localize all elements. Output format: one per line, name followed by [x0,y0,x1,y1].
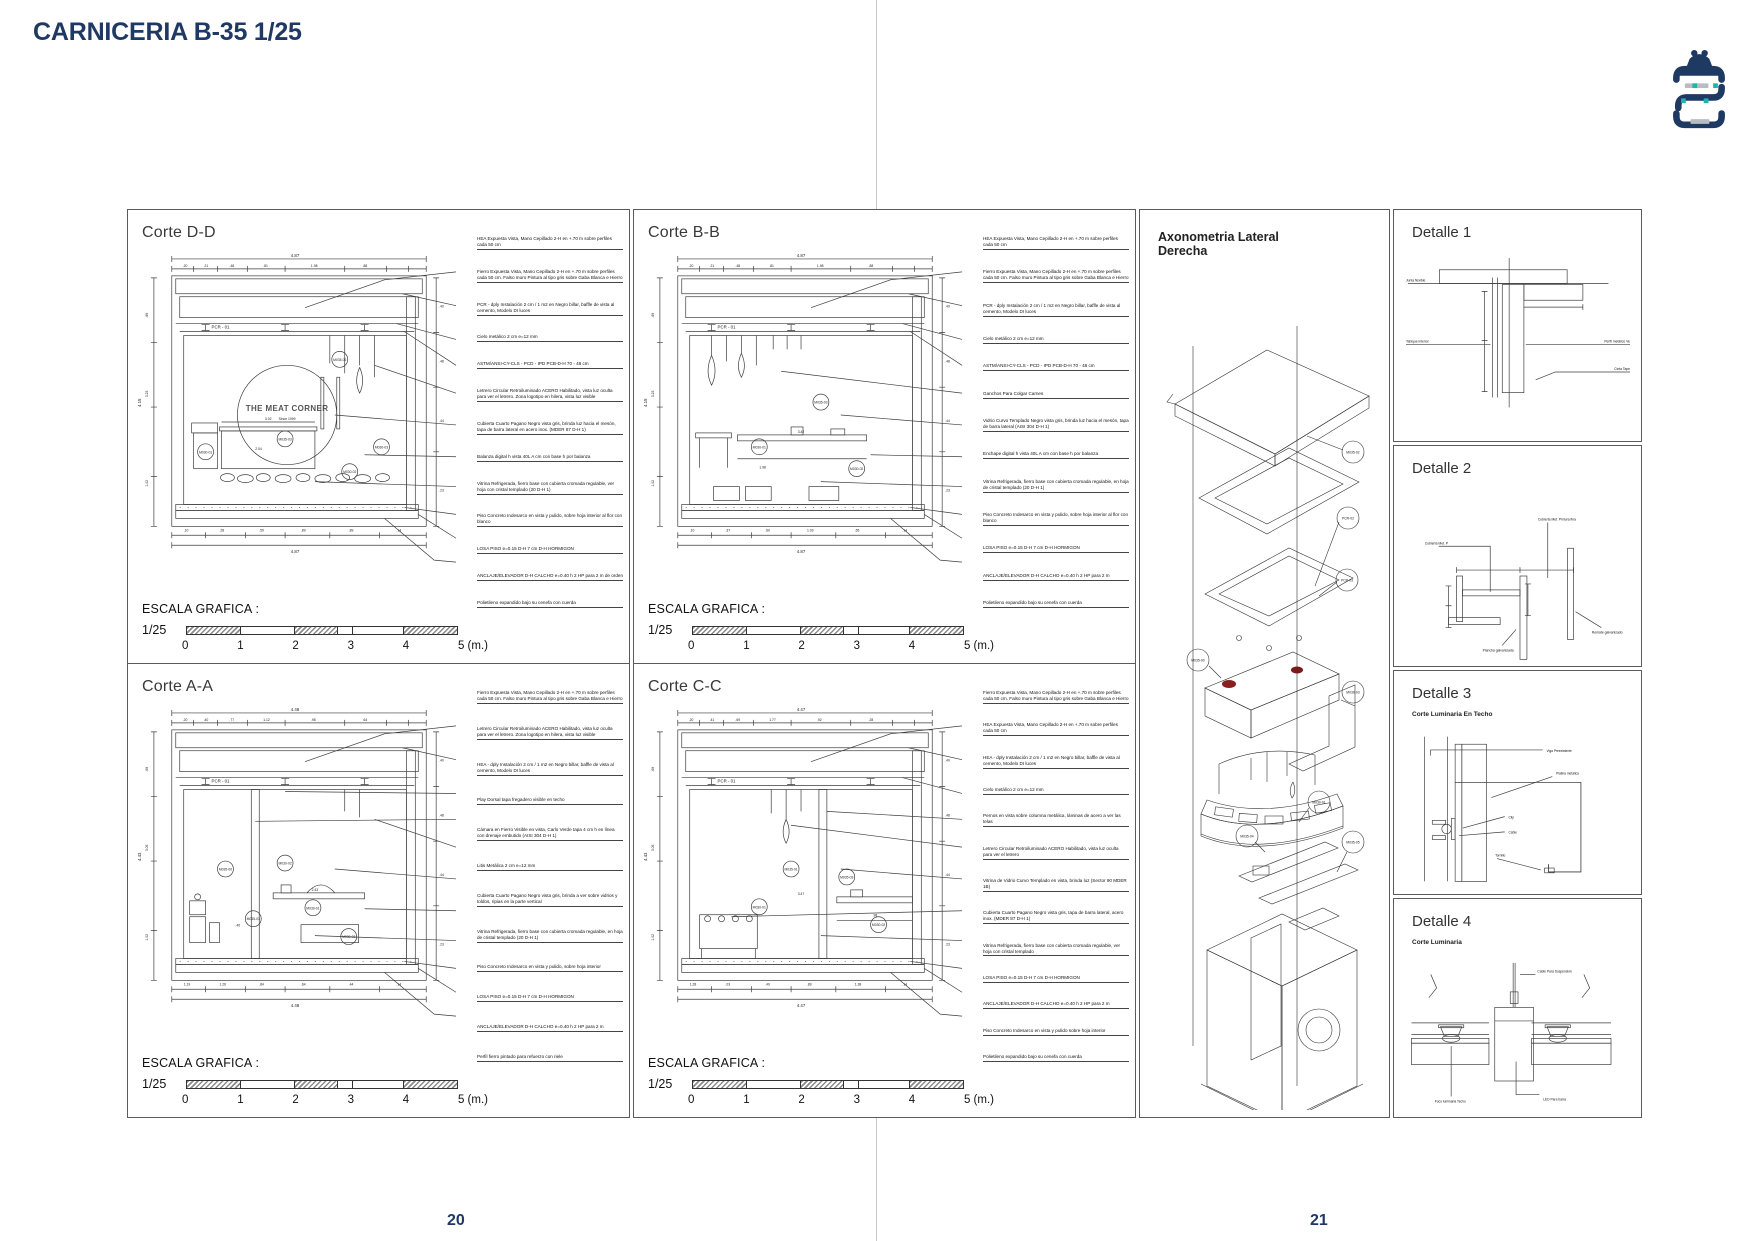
annotation-note: PCR - dply Instalación 2 cm / 1 m2 en Ne… [983,303,1129,317]
svg-text:.23: .23 [439,943,444,947]
svg-text:Foco luminaria Techo: Foco luminaria Techo [1435,1099,1466,1103]
svg-text:Cable Para Suspensión: Cable Para Suspensión [1537,970,1572,974]
annotation-note: Vitrina Refrigerada, fierro base con cub… [983,943,1129,957]
corte-drawing-cc: 4.47 .20.41.691.77.92.28 1.28.03.49.891.… [642,702,970,1040]
panel-detalle-3: Detalle 3 Corte Luminaria En Techo Viga … [1393,670,1642,895]
svg-text:PCR - 01: PCR - 01 [718,325,737,330]
annotation-note: Pernos en vista sobre columna metálica, … [983,813,1129,827]
panel-axonometria: Axonometria Lateral Derecha [1139,209,1390,1118]
svg-text:M035-00: M035-00 [1191,659,1204,663]
scale-tick: 3 [854,640,860,652]
svg-text:.64: .64 [363,718,368,722]
svg-text:.23: .23 [945,943,950,947]
annotation-note: Piso Concreto Indesarco en vista y pulid… [477,964,623,972]
scale-label: ESCALA GRAFICA : [648,1056,988,1070]
scale-tick: 4 [403,640,409,652]
scale-tick: 0 [182,1094,188,1106]
svg-text:.40: .40 [439,759,444,763]
svg-text:Cubierta Met. Pintura fina: Cubierta Met. Pintura fina [1538,517,1576,521]
detalle-subtitle: Corte Luminaria [1412,939,1462,946]
svg-text:.20: .20 [183,264,188,268]
svg-text:4.87: 4.87 [291,253,300,258]
annotation-note: LOSA PISO e=0.15 D-H 7 cm D-H HORMIGON [983,975,1129,983]
annotation-note: LOSA PISO e=0.15 D-H 7 cm D-H HORMIGON [477,994,623,1002]
annotation-note: Perfil fierro pintado para refuerzo con … [477,1054,623,1062]
scale-tick: 1 [237,640,243,652]
scale-ratio: 1/25 [142,1077,186,1091]
svg-text:2.43: 2.43 [312,888,319,892]
svg-text:.69: .69 [145,313,149,318]
section-structure: PCR - 01 [678,730,932,980]
axonometria-callouts: M035-02 PCR-02 PCR-03 M035-00 M030-03 M0… [1187,436,1364,872]
svg-text:.23: .23 [439,489,444,493]
exploded-brick-signage-box [1205,652,1339,738]
annotation-column: HEA Expuesta Vista, Mano Cepillado 2-H e… [983,236,1129,608]
svg-text:.10: .10 [690,528,695,532]
svg-text:.69: .69 [145,767,149,772]
annotation-note: ASTM/ANSI-CY-CLS - PCD - IPD PCB-D-H 70 … [983,363,1129,371]
svg-text:Since 1999: Since 1999 [279,417,296,421]
scale-tick: 3 [854,1094,860,1106]
annotation-note: Fierro Expuesta Vista, Mano Cepillado 2-… [983,269,1129,283]
annotation-note: Enchape digital h vista 40L A cm con bas… [983,451,1129,459]
annotation-note: Cielo metálico 2 cm e=12 mm [983,336,1129,344]
scale-tick: 2 [292,1094,298,1106]
scale-end-label: 5 (m.) [458,640,488,652]
svg-text:M030-02: M030-02 [872,923,885,927]
svg-text:.48: .48 [735,264,740,268]
svg-text:.28: .28 [219,528,224,532]
exploded-glass-guard [1219,751,1315,798]
svg-text:M035-05: M035-05 [1346,841,1359,845]
exploded-ceiling-frame-1 [1199,448,1359,534]
annotation-note: ASTM/ANSI-CY-CLS - PCD - IPD PCB-D-H 70 … [477,361,623,369]
scale-tick: 2 [798,640,804,652]
section-structure: PCR - 01 [678,276,932,526]
svg-text:.40: .40 [945,759,950,763]
svg-text:4.15: 4.15 [137,398,142,407]
scale-ticks: 5 (m.)01234 [688,640,994,652]
svg-text:.84: .84 [259,982,264,986]
svg-text:.48: .48 [945,359,950,363]
svg-text:M035-02: M035-02 [1346,451,1359,455]
svg-text:.48: .48 [945,813,950,817]
annotation-note: ANCLAJE/ELEVADOR D-H CALCHO e=0.40 h 2 H… [983,573,1129,581]
detalle-title: Detalle 4 [1412,913,1471,930]
scale-ticks: 5 (m.)01234 [688,1094,994,1106]
svg-text:.40: .40 [945,305,950,309]
svg-text:1.02: 1.02 [145,934,149,941]
corte-title: Corte A-A [142,678,213,696]
svg-text:.81: .81 [769,264,774,268]
detalle-title: Detalle 3 [1412,685,1471,702]
corte-title: Corte B-B [648,224,720,242]
svg-text:.44: .44 [945,873,950,877]
svg-text:3.23: 3.23 [145,390,149,397]
svg-text:Perfil metálico Ve: Perfil metálico Ve [1604,339,1630,343]
scale-block: ESCALA GRAFICA : 1/25 5 (m.)01234 [648,1056,988,1106]
svg-text:.98: .98 [311,718,316,722]
annotation-note: HEA Expuesta Vista, Mano Cepillado 2-H e… [983,722,1129,736]
svg-text:4.47: 4.47 [797,1003,806,1008]
annotation-note: Vitrina Refrigerada, fierro base con cub… [477,481,623,495]
svg-text:3.02: 3.02 [265,417,272,421]
svg-text:M035-04: M035-04 [1240,835,1253,839]
svg-text:.28: .28 [869,718,874,722]
scale-end-label: 5 (m.) [964,1094,994,1106]
panel-detalle-2: Detalle 2 Cubierta Met. P Cubierta Met. … [1393,445,1642,667]
annotation-note: Vidrio Curvo Templado Negro vista gris, … [983,418,1129,432]
annotation-note: LOSA PISO e=0.15 D-H 7 cm D-H HORMIGON [477,546,623,554]
panel-detalle-4: Detalle 4 Corte Luminaria Cable Para Sus… [1393,898,1642,1118]
svg-text:M030-03: M030-03 [342,935,355,939]
svg-text:.48: .48 [439,813,444,817]
annotation-note: Piso Concreto Indesarco en vista y pulid… [477,513,623,527]
axonometria-title: Axonometria Lateral Derecha [1158,230,1279,259]
annotation-note: Vitrina de Vidrio Curvo Templado en vist… [983,878,1129,892]
scale-bar [692,1080,964,1089]
svg-text:.44: .44 [439,873,444,877]
spotlight-right [1545,1025,1570,1042]
svg-text:3.42: 3.42 [798,430,805,434]
document-page: CARNICERIA B-35 1/25 Corte D-D [0,0,1754,1241]
annotation-note: Play Dorsal tapa fregadero visible en te… [477,797,623,805]
scale-tick: 4 [909,1094,915,1106]
annotation-note: ANCLAJE/ELEVADOR D-H CALCHO e=0.40 h 2 H… [477,573,623,581]
svg-text:.23: .23 [945,489,950,493]
corte-section-aa: Corte A-A 4.48 .20.40.771.12.98.64 1.191… [128,663,629,1117]
scale-label: ESCALA GRAFICA : [142,602,482,616]
svg-text:.40: .40 [439,305,444,309]
svg-text:M035-02: M035-02 [333,358,346,362]
svg-text:.44: .44 [439,419,444,423]
scale-block: ESCALA GRAFICA : 1/25 5 (m.)01234 [142,1056,482,1106]
annotation-note: Piso Concreto Indesarco en vista y pulid… [983,512,1129,526]
exploded-base-rails [1239,842,1358,904]
svg-text:1.98: 1.98 [759,466,766,470]
annotation-note: Letrero Circular Retroiluminado ACERO Ha… [477,388,623,402]
annotation-note: Cubierta Cuarto Pagano Negro vista gris,… [983,910,1129,924]
svg-text:1.19: 1.19 [184,982,191,986]
svg-text:M030-03: M030-03 [375,445,388,449]
svg-text:M035-03: M035-03 [247,917,260,921]
svg-text:4.43: 4.43 [137,852,142,861]
svg-text:M030-01: M030-01 [753,445,766,449]
svg-text:4.48: 4.48 [291,1003,300,1008]
scale-tick: 1 [237,1094,243,1106]
annotation-column: Fierro Expuesta Vista, Mano Cepillado 2-… [983,690,1129,1062]
studio-bear-logo-icon [1666,44,1732,134]
annotation-note: Fierro Expuesta Vista, Mano Cepillado 2-… [477,269,623,283]
svg-text:4.87: 4.87 [797,253,806,258]
callout-bubbles: M035-03 M030-01 M030-02 [751,394,864,476]
callout-bubbles: M035-00 M030-02 M030-01 M035-03 M030-03 [218,855,357,944]
svg-text:Tornillo: Tornillo [1495,854,1505,858]
svg-text:.44: .44 [349,982,354,986]
annotation-note: Piso Concreto Indesarco en vista y pulid… [983,1028,1129,1036]
svg-text:1.02: 1.02 [651,934,655,941]
svg-text:.37: .37 [725,528,730,532]
svg-text:M030-01: M030-01 [1312,801,1325,805]
svg-text:1.02: 1.02 [651,480,655,487]
interior-fitout: THE MEAT CORNER Since 1999 3.02 2.04 [192,335,390,482]
annotation-note: ANCLAJE/ELEVADOR D-H CALCHO e=0.40 h 2 H… [983,1001,1129,1009]
svg-text:1.12: 1.12 [263,718,270,722]
svg-text:Clip: Clip [1508,816,1514,820]
svg-text:.10: .10 [184,528,189,532]
exploded-kiosk [1201,914,1363,1110]
interior-fitout: 2.43 .40 [190,789,365,958]
svg-text:.40: .40 [235,924,240,928]
scale-tick: 0 [182,640,188,652]
annotation-note: Litis Metálica 2 cm e=12 mm [477,863,623,871]
scale-tick: 0 [688,1094,694,1106]
svg-text:M030-01: M030-01 [306,906,319,910]
scale-ratio: 1/25 [142,623,186,637]
annotation-note: Cubierta Cuarto Pagano Negro vista gris,… [477,893,623,907]
svg-text:Tabique interior: Tabique interior [1406,339,1430,343]
exploded-l-bracket [1289,685,1355,771]
detalle-title: Detalle 1 [1412,224,1471,241]
svg-text:PCR - 01: PCR - 01 [718,779,737,784]
dimension-lines: 4.87 .20.21.48.811.98.88 .10.37.601.03.6… [643,253,950,554]
exploded-hooks [1237,636,1302,651]
corte-section-cc: Corte C-C 4.47 .20.41.691.77.92.28 1.28.… [634,663,1135,1117]
detalle-4-drawing: Cable Para Suspensión Foco luminaria Tec… [1399,957,1637,1112]
scale-ticks: 5 (m.)01234 [182,640,488,652]
svg-text:.21: .21 [204,264,209,268]
svg-text:Viga Preexistente: Viga Preexistente [1547,749,1572,753]
scale-bar [186,626,458,635]
svg-text:4.48: 4.48 [291,707,300,712]
corte-title: Corte C-C [648,678,722,696]
svg-text:2.04: 2.04 [255,447,262,451]
annotation-note: Vitrina Refrigerada, fierro base con cub… [477,929,623,943]
scale-bar [692,626,964,635]
detalle-title: Detalle 2 [1412,460,1471,477]
svg-text:4.43: 4.43 [643,852,648,861]
scale-label: ESCALA GRAFICA : [648,602,988,616]
svg-text:Cubierta Met. P: Cubierta Met. P [1425,541,1449,545]
annotation-note: HEA - dply Instalación 2 cm / 1 m2 en Ne… [477,762,623,776]
svg-text:1.02: 1.02 [145,480,149,487]
panel-cortes-left: Corte D-D 4.87 .20.21.48.811.98.88 .10.2… [127,209,630,1118]
svg-text:M030-02: M030-02 [343,470,356,474]
page-number-left: 20 [447,1212,465,1230]
svg-text:.20: .20 [183,718,188,722]
spotlight-left [1439,1025,1464,1042]
corte-section-dd: Corte D-D 4.87 .20.21.48.811.98.88 .10.2… [128,210,629,663]
svg-text:M035-03: M035-03 [840,875,853,879]
scale-tick: 1 [743,1094,749,1106]
svg-text:4.87: 4.87 [797,549,806,554]
corte-drawing-aa: 4.48 .20.40.771.12.98.64 1.191.26.84.64.… [136,702,464,1040]
annotation-note: Cubierta Cuarto Pagano Negro vista gris,… [477,421,623,435]
svg-text:Cinta Tape: Cinta Tape [1614,367,1630,371]
svg-text:M030-03: M030-03 [1346,691,1359,695]
svg-text:4.47: 4.47 [797,707,806,712]
svg-text:LED Para barra: LED Para barra [1543,1097,1566,1101]
scale-end-label: 5 (m.) [458,1094,488,1106]
annotation-note: Cielo metálico 2 cm e=12 mm [983,787,1129,795]
pendant-luminaire [1495,963,1534,1081]
scale-tick: 4 [403,1094,409,1106]
svg-text:PCR-03: PCR-03 [1341,579,1353,583]
annotation-note: HEA Expuesta Vista, Mano Cepillado 2-H e… [983,236,1129,250]
svg-text:M030-01: M030-01 [753,905,766,909]
detalle-2-drawing: Cubierta Met. P Cubierta Met. Pintura fi… [1399,492,1637,664]
svg-text:THE MEAT CORNER: THE MEAT CORNER [246,404,329,413]
svg-text:.40: .40 [204,718,209,722]
annotation-note: HEA - dply Instalación 2 cm / 1 m2 en Ne… [983,755,1129,769]
scale-ratio: 1/25 [648,1077,692,1091]
axonometria-drawing: M035-02 PCR-02 PCR-03 M035-00 M030-03 M0… [1147,286,1383,1110]
svg-text:Plancha galvanizada: Plancha galvanizada [1483,648,1514,652]
svg-text:3.23: 3.23 [651,390,655,397]
detalle-subtitle: Corte Luminaria En Techo [1412,711,1492,718]
svg-text:.60: .60 [765,528,770,532]
svg-text:M035-03: M035-03 [814,401,827,405]
scale-block: ESCALA GRAFICA : 1/25 5 (m.)01234 [142,602,482,652]
corte-drawing-bb: 4.87 .20.21.48.811.98.88 .10.37.601.03.6… [642,248,970,586]
annotation-note: HEA Expuesta Vista, Mano Cepillado 2-H e… [477,236,623,250]
svg-text:.65: .65 [855,528,860,532]
annotation-note: Vitrina Refrigerada, fierro base con cub… [983,479,1129,493]
svg-text:.77: .77 [229,718,234,722]
svg-text:Remate galvanizado: Remate galvanizado [1592,631,1623,635]
exploded-drawer-tray [1289,908,1339,930]
scale-tick: 3 [348,640,354,652]
svg-text:.48: .48 [439,359,444,363]
svg-text:1.98: 1.98 [311,264,318,268]
svg-text:.64: .64 [301,982,306,986]
scale-bar [186,1080,458,1089]
corte-section-bb: Corte B-B 4.87 .20.21.48.811.98.88 .10.3… [634,210,1135,663]
annotation-column: Fierro Expuesta Vista, Mano Cepillado 2-… [477,690,623,1062]
scale-tick: 4 [909,640,915,652]
annotation-note: LOSA PISO e=0.15 D-H 7 cm D-H HORMIGON [983,545,1129,553]
svg-text:M030-01: M030-01 [199,450,212,454]
scale-ratio: 1/25 [648,623,692,637]
panel-detalle-1: Detalle 1 Junta flexible Tabique interio… [1393,209,1642,442]
svg-text:.89: .89 [301,528,306,532]
svg-text:1.03: 1.03 [807,528,814,532]
scale-tick: 2 [798,1094,804,1106]
svg-text:M035-03: M035-03 [278,437,291,441]
svg-text:.69: .69 [651,313,655,318]
annotation-note: ANCLAJE/ELEVADOR D-H CALCHO e=0.40 h 2 H… [477,1024,623,1032]
svg-text:PCR - 01: PCR - 01 [212,325,231,330]
svg-text:.48: .48 [229,264,234,268]
svg-text:.89: .89 [807,982,812,986]
svg-text:.44: .44 [945,419,950,423]
svg-text:4.15: 4.15 [643,398,648,407]
annotation-column: HEA Expuesta Vista, Mano Cepillado 2-H e… [477,236,623,608]
annotation-note: Polietileno expandido bajo su cenefa con… [983,1054,1129,1062]
annotation-note: PCR - dply Instalación 2 cm / 1 m2 en Ne… [477,302,623,316]
page-title: CARNICERIA B-35 1/25 [33,18,302,47]
svg-text:M030-02: M030-02 [278,862,291,866]
annotation-note: Cámara en Fierro Visible en vista, Carlo… [477,827,623,841]
svg-text:.88: .88 [869,264,874,268]
svg-text:.89: .89 [349,528,354,532]
interior-fitout: 3.42 1.98 [696,335,867,500]
svg-text:PCR - 01: PCR - 01 [212,779,231,784]
svg-text:1.77: 1.77 [769,718,776,722]
svg-text:4.87: 4.87 [291,549,300,554]
annotation-note: Letrero Circular Retroiluminado ACERO Ha… [477,726,623,740]
svg-text:1.26: 1.26 [219,982,226,986]
svg-text:.69: .69 [735,718,740,722]
annotation-note: Polietileno expandido bajo su cenefa con… [983,600,1129,608]
detalle-3-drawing: Viga Preexistente Platina metálica Clip … [1399,729,1637,889]
annotation-note: Fierro Expuesta Vista, Mano Cepillado 2-… [477,690,623,704]
annotation-note: Ganchos Para Colgar Carnes [983,391,1129,399]
scale-block: ESCALA GRAFICA : 1/25 5 (m.)01234 [648,602,988,652]
page-number-right: 21 [1310,1212,1328,1230]
svg-text:.20: .20 [689,264,694,268]
scale-end-label: 5 (m.) [964,640,994,652]
svg-text:Platina metálica: Platina metálica [1556,772,1579,776]
svg-text:1.38: 1.38 [855,982,862,986]
svg-text:1.98: 1.98 [817,264,824,268]
svg-text:1.28: 1.28 [690,982,697,986]
panel-cortes-mid: Corte B-B 4.87 .20.21.48.811.98.88 .10.3… [633,209,1136,1118]
svg-text:.81: .81 [263,264,268,268]
svg-text:.59: .59 [259,528,264,532]
scale-tick: 2 [292,640,298,652]
svg-text:3.05: 3.05 [651,844,655,851]
dimension-lines: 4.47 .20.41.691.77.92.28 1.28.03.49.891.… [643,707,950,1008]
svg-text:.49: .49 [765,982,770,986]
svg-text:M035-00: M035-00 [219,868,232,872]
annotation-note: Polietileno expandido bajo su cenefa con… [477,600,623,608]
svg-text:PCR-02: PCR-02 [1342,517,1354,521]
svg-text:Junta flexible: Junta flexible [1406,279,1426,283]
scale-tick: 1 [743,640,749,652]
svg-text:.41: .41 [710,718,715,722]
svg-text:M030-02: M030-02 [850,467,863,471]
svg-text:3.05: 3.05 [145,844,149,851]
detalle-1-drawing: Junta flexible Tabique interior Perfil m… [1399,256,1637,428]
svg-text:.03: .03 [725,982,730,986]
svg-text:.20: .20 [689,718,694,722]
annotation-note: Letrero Circular Retroiluminado ACERO Ha… [983,846,1129,860]
scale-ticks: 5 (m.)01234 [182,1094,488,1106]
svg-text:Cable: Cable [1508,831,1517,835]
corte-drawing-dd: 4.87 .20.21.48.811.98.88 .10.28.59.89.89… [136,248,464,586]
svg-text:.21: .21 [710,264,715,268]
annotation-note: Balanza digital h vista 40L A cm con bas… [477,454,623,462]
svg-text:.69: .69 [651,767,655,772]
svg-text:.88: .88 [363,264,368,268]
scale-tick: 0 [688,640,694,652]
scale-label: ESCALA GRAFICA : [142,1056,482,1070]
section-structure: PCR - 01 [172,276,426,526]
annotation-note: Fierro Expuesta Vista, Mano Cepillado 2-… [983,690,1129,704]
svg-text:.92: .92 [817,718,822,722]
corte-title: Corte D-D [142,224,216,242]
scale-tick: 3 [348,1094,354,1106]
annotation-note: Cielo metálico 2 cm e=12 mm [477,334,623,342]
svg-text:M035-01: M035-01 [784,868,797,872]
svg-text:3.47: 3.47 [798,892,805,896]
